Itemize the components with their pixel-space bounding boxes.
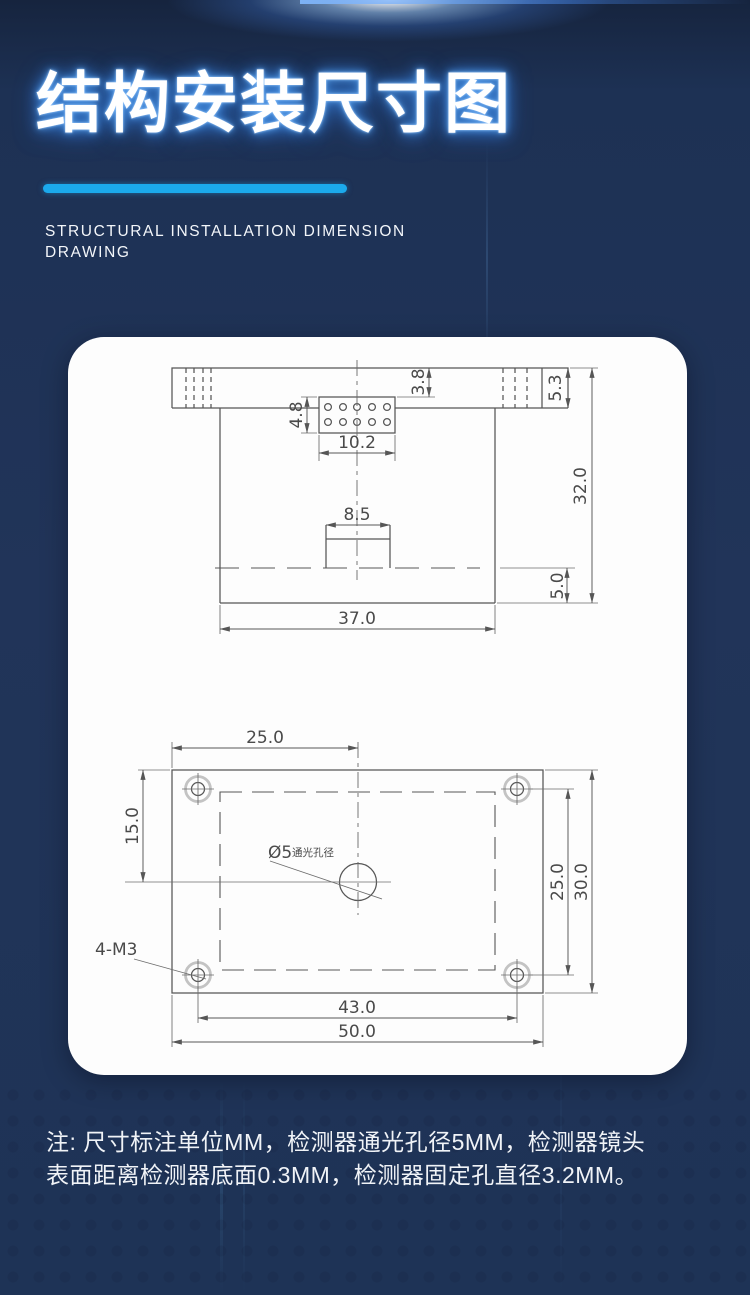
dim-step-height: 3.8 (397, 368, 435, 397)
light-aperture (125, 742, 391, 915)
flange-right-hatch (503, 368, 527, 408)
svg-text:Ø5: Ø5 (268, 843, 292, 863)
dimension-drawing-card: 4.8 10.2 3.8 5.3 8.5 (68, 337, 687, 1075)
plate-outline (172, 770, 543, 993)
dim-center-offset-y: 15.0 (123, 770, 170, 882)
page-subtitle: STRUCTURAL INSTALLATION DIMENSION DRAWIN… (45, 221, 485, 263)
svg-text:通光孔径: 通光孔径 (292, 846, 334, 859)
subtitle-line-2: DRAWING (45, 242, 485, 263)
dim-body-width: 37.0 (220, 605, 495, 634)
side-view-drawing: 4.8 10.2 3.8 5.3 8.5 (172, 360, 598, 634)
body-dashed-outline (220, 792, 495, 970)
dim-flange-height: 5.3 (546, 368, 568, 408)
svg-text:15.0: 15.0 (123, 807, 143, 845)
svg-text:3.8: 3.8 (409, 368, 429, 395)
svg-text:37.0: 37.0 (338, 609, 376, 629)
screw-hole (501, 773, 533, 805)
lens-housing (326, 525, 390, 568)
product-detail-page: { "header": { "title": "结构安装尺寸图", "subti… (0, 0, 750, 1295)
svg-text:25.0: 25.0 (246, 728, 284, 748)
top-light-line (300, 0, 750, 4)
screw-spec-label: 4-M3 (95, 940, 206, 979)
svg-text:10.2: 10.2 (338, 433, 376, 453)
screw-hole (182, 773, 214, 805)
accent-divider-bar (43, 184, 347, 193)
top-view-drawing: Ø5 通光孔径 4-M3 25.0 15.0 (95, 728, 598, 1047)
dim-connector-height: 4.8 (287, 397, 317, 433)
svg-text:8.5: 8.5 (343, 505, 370, 525)
dim-lens-width: 8.5 (326, 505, 390, 525)
dim-base-height: 5.0 (548, 568, 568, 603)
page-title: 结构安装尺寸图 (36, 50, 512, 146)
svg-text:4.8: 4.8 (287, 401, 307, 428)
svg-text:50.0: 50.0 (338, 1022, 376, 1042)
svg-text:43.0: 43.0 (338, 998, 376, 1018)
dim-hole-pitch-y: 25.0 (531, 789, 574, 975)
footnote: 注: 尺寸标注单位MM，检测器通光孔径5MM，检测器镜头 表面距离检测器底面0.… (46, 1126, 716, 1192)
svg-text:32.0: 32.0 (571, 467, 591, 505)
svg-text:5.0: 5.0 (548, 572, 568, 599)
svg-text:5.3: 5.3 (546, 374, 566, 401)
svg-text:4-M3: 4-M3 (95, 940, 137, 960)
aperture-label: Ø5 通光孔径 (268, 843, 382, 899)
aperture-leader-line (270, 861, 382, 899)
screw-hole (501, 959, 533, 991)
screw-hole (182, 959, 214, 991)
footnote-line-2: 表面距离检测器底面0.3MM，检测器固定孔直径3.2MM。 (46, 1159, 716, 1192)
dimension-drawing-svg: 4.8 10.2 3.8 5.3 8.5 (68, 337, 687, 1075)
subtitle-line-1: STRUCTURAL INSTALLATION DIMENSION (45, 221, 485, 242)
flange-left-hatch (186, 368, 211, 408)
footnote-line-1: 注: 尺寸标注单位MM，检测器通光孔径5MM，检测器镜头 (46, 1126, 716, 1159)
svg-text:25.0: 25.0 (548, 863, 568, 901)
svg-text:30.0: 30.0 (572, 863, 592, 901)
dim-center-offset-x: 25.0 (172, 728, 358, 768)
